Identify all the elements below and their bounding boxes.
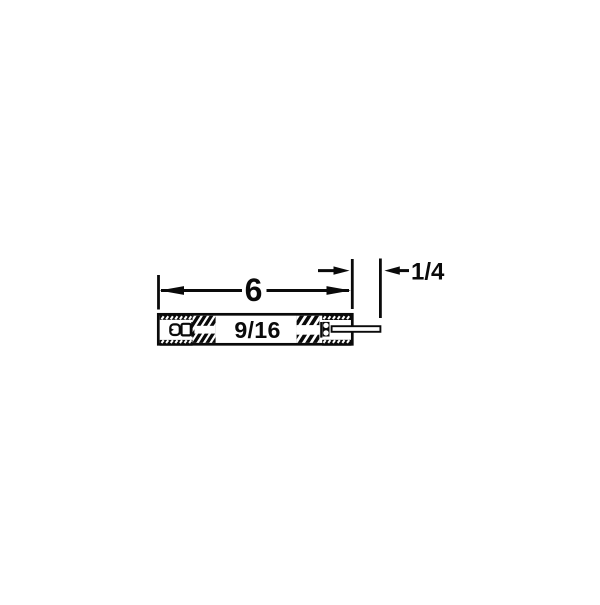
svg-text:9/16: 9/16 <box>234 317 280 343</box>
svg-text:1/4: 1/4 <box>411 258 445 285</box>
svg-text:6: 6 <box>245 272 263 308</box>
